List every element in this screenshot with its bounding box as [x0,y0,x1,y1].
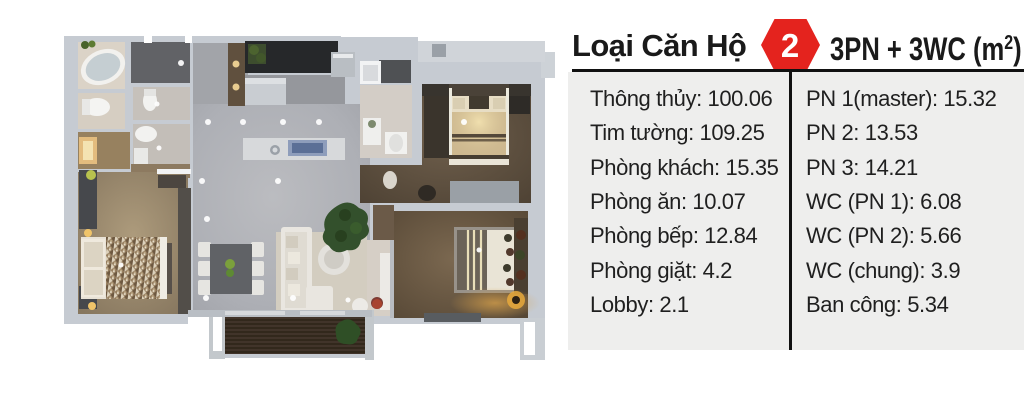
svg-text:2: 2 [781,27,799,64]
